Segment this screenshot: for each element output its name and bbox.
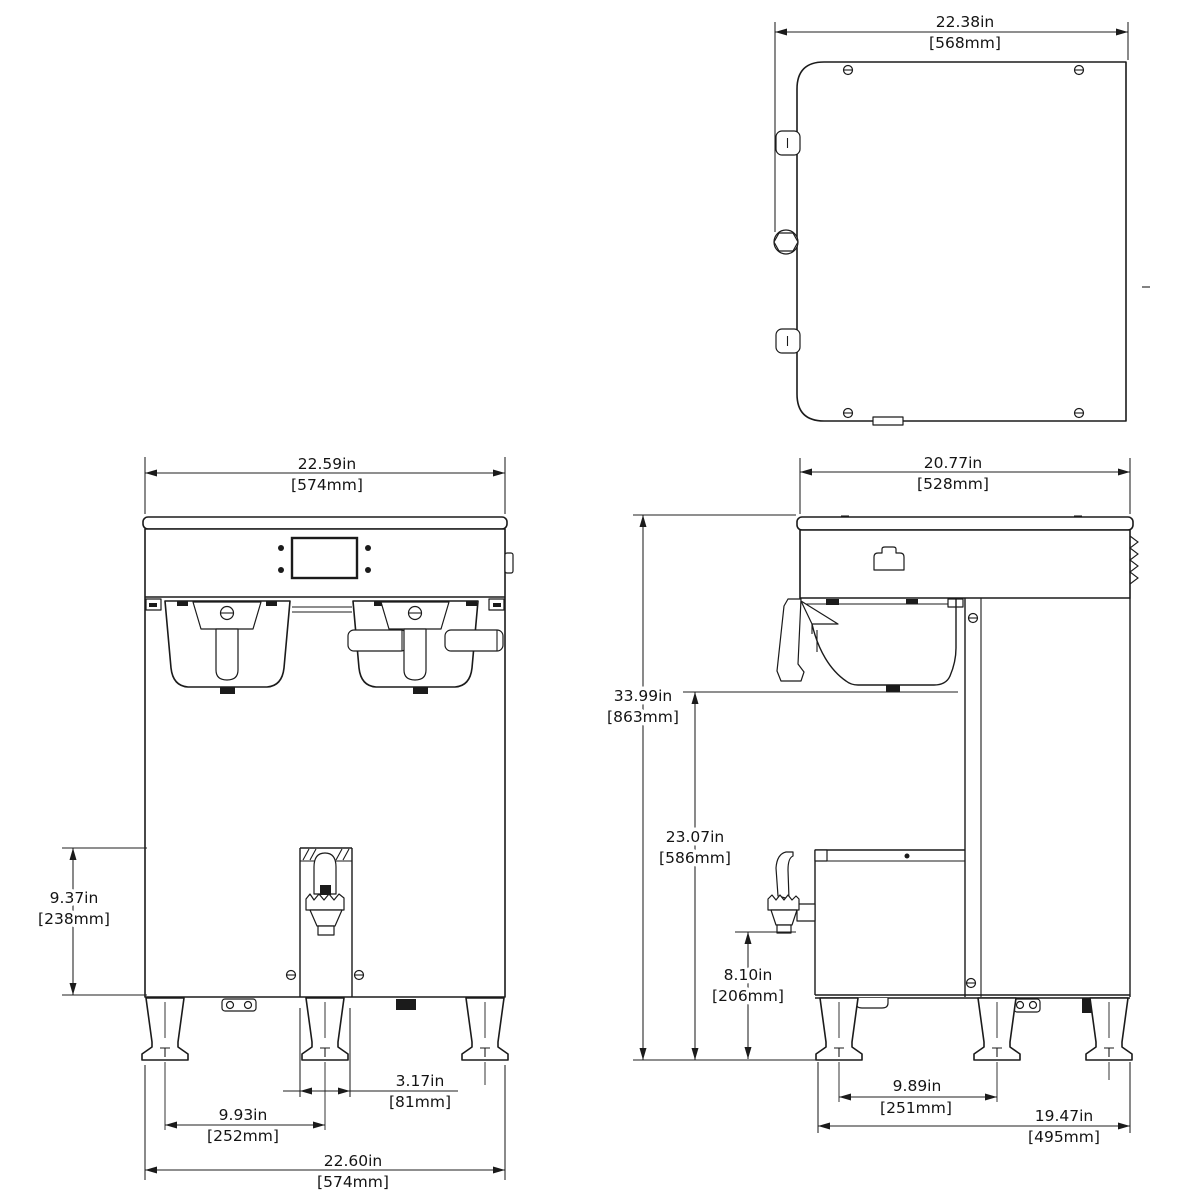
dimension-overall-height: 33.99in [863mm] [607,515,818,1060]
funnel-wing [445,630,503,651]
drip-tip [413,687,428,694]
screw-icon [844,66,853,75]
button-dot [278,567,284,573]
top-lid [143,517,507,529]
screw-icon [1075,409,1084,418]
mounting-tab [776,131,800,155]
drip-tip [220,687,235,694]
screw-icon [844,409,853,418]
brew-funnel-side [777,599,963,692]
dimension-side-leg-depth: 19.47in [495mm] [818,1062,1130,1146]
dimension-drawing: 22.38in [568mm] 22.59in [574mm] [0,0,1200,1200]
top-view: 22.38in [568mm] [774,13,1150,425]
dim-top-width-in: 22.38in [936,13,995,31]
leg [1086,998,1132,1060]
dimension-front-top-width: 22.59in [574mm] [145,455,505,514]
button-dot [365,567,371,573]
vent [396,999,416,1010]
dim-stand-width-in: 3.17in [396,1072,445,1090]
dim-front-overall-width-mm: [574mm] [317,1173,389,1191]
dim-server-height-mm: [238mm] [38,910,110,928]
button-dot [365,545,371,551]
screw-icon [967,979,976,988]
dim-side-leg-depth-in: 19.47in [1035,1107,1094,1125]
dim-faucet-clearance-in: 8.10in [724,966,773,984]
dimension-side-leg-spacing: 9.89in [251mm] [839,1077,997,1117]
dim-front-leg-spacing-mm: [252mm] [207,1127,279,1145]
dim-side-leg-spacing-in: 9.89in [893,1077,942,1095]
water-inlet-fitting [774,230,798,254]
hinge-serration [1130,536,1138,584]
drawing-canvas: 22.38in [568mm] 22.59in [574mm] [0,0,1200,1200]
mounting-tab [776,329,800,353]
dimension-side-top-width: 20.77in [528mm] [800,454,1130,514]
side-tab [505,553,513,573]
leg [816,998,862,1060]
dim-faucet-clearance-mm: [206mm] [712,987,784,1005]
dim-side-leg-depth-mm: [495mm] [1028,1128,1100,1146]
leg [974,998,1020,1060]
rear-tab [873,417,903,425]
display-panel [278,538,371,578]
brew-head [800,530,1130,598]
dim-side-top-width-mm: [528mm] [917,475,989,493]
side-view: 20.77in [528mm] [607,454,1138,1146]
dim-funnel-clearance-in: 23.07in [666,828,725,846]
front-view: 22.59in [574mm] [38,455,513,1191]
funnel-wing [348,630,407,651]
dim-server-height-in: 9.37in [50,889,99,907]
dim-overall-height-mm: [863mm] [607,708,679,726]
dimension-funnel-clearance: 23.07in [586mm] [659,692,958,1060]
dim-stand-width-mm: [81mm] [389,1093,451,1111]
dim-top-width-mm: [568mm] [929,34,1001,52]
dim-front-top-width-in: 22.59in [298,455,357,473]
screw-icon [1075,66,1084,75]
drip-tip [886,685,900,692]
dim-funnel-clearance-mm: [586mm] [659,849,731,867]
leg [302,998,348,1060]
top-lid [797,517,1133,530]
base-recess [856,998,888,1008]
dim-front-leg-spacing-in: 9.93in [219,1106,268,1124]
side-body [768,516,1138,1102]
dim-front-overall-width-in: 22.60in [324,1152,383,1170]
leg [142,998,188,1060]
dimension-front-leg-spacing: 9.93in [252mm] [165,1106,325,1145]
screw-icon [287,971,296,980]
button-dot [278,545,284,551]
dimension-server-height: 9.37in [238mm] [38,848,147,995]
front-body [142,517,513,1130]
dim-side-leg-spacing-mm: [251mm] [880,1099,952,1117]
screw-icon [969,614,978,623]
dim-front-top-width-mm: [574mm] [291,476,363,494]
screw-icon [355,971,364,980]
hot-water-faucet-side [768,852,815,933]
brew-funnel-left [165,601,290,694]
server-tank-side [768,850,965,995]
dim-overall-height-in: 33.99in [614,687,673,705]
funnel-handle-side [777,599,804,681]
dim-side-top-width-in: 20.77in [924,454,983,472]
top-view-body [774,62,1150,425]
leg [462,998,508,1060]
dimension-faucet-clearance: 8.10in [206mm] [712,932,796,1059]
